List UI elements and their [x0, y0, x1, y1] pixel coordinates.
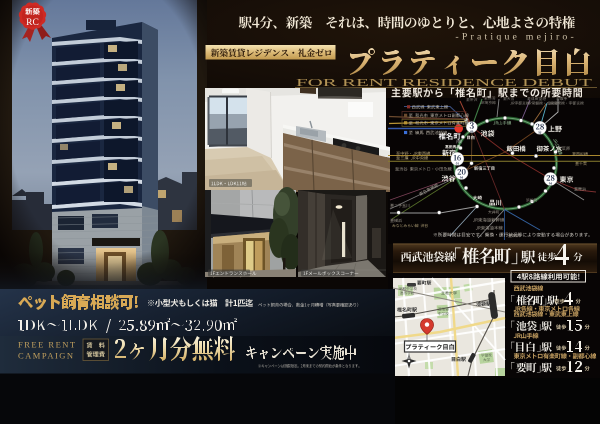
svg-text:-Pratique mejiro-: -Pratique mejiro- — [455, 32, 577, 43]
svg-text:RC: RC — [26, 18, 39, 28]
svg-text:CAMPAIGN: CAMPAIGN — [18, 351, 75, 361]
svg-text:FREE RENT: FREE RENT — [18, 340, 77, 350]
